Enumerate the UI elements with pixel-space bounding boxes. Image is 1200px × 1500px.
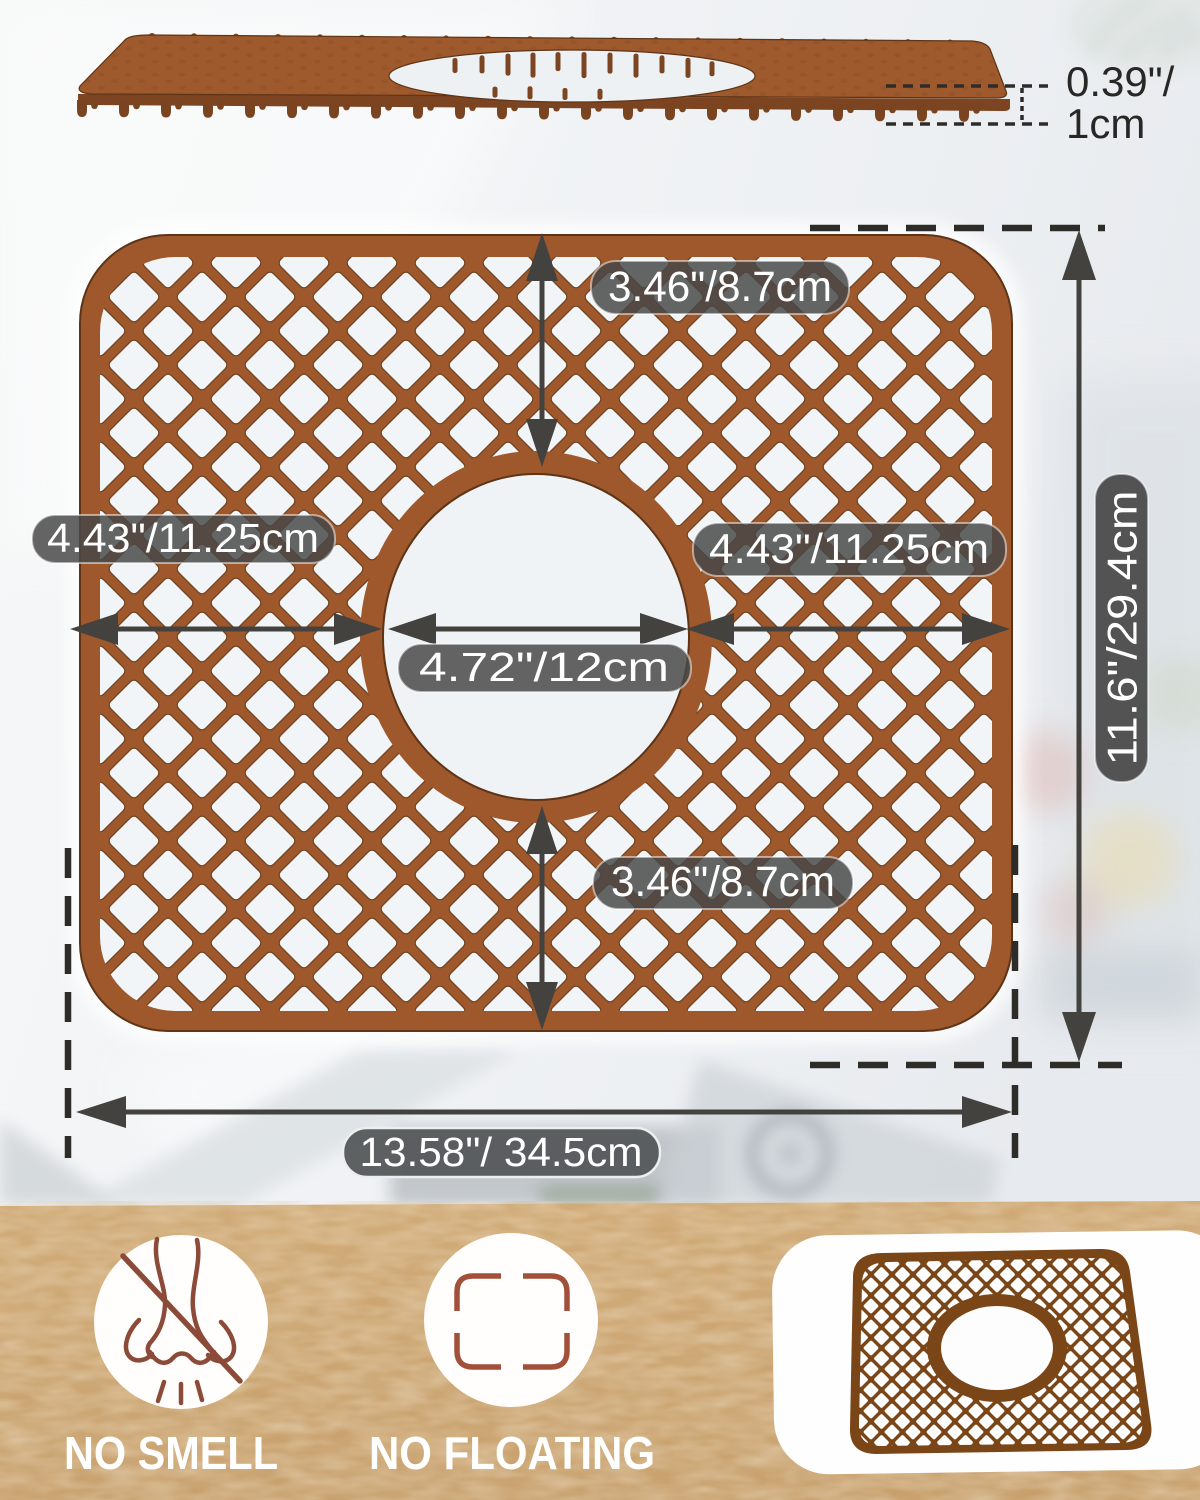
svg-text:4.72"/12cm: 4.72"/12cm	[419, 644, 669, 690]
svg-text:4.43"/11.25cm: 4.43"/11.25cm	[47, 515, 319, 561]
svg-text:13.58"/ 34.5cm: 13.58"/ 34.5cm	[360, 1129, 643, 1175]
svg-text:NO FLOATING: NO FLOATING	[369, 1427, 655, 1479]
svg-text:NO SMELL: NO SMELL	[64, 1427, 278, 1479]
svg-text:11.6"/29.4cm: 11.6"/29.4cm	[1099, 491, 1146, 766]
svg-text:3.46"/8.7cm: 3.46"/8.7cm	[611, 858, 835, 906]
svg-text:1cm: 1cm	[1066, 100, 1145, 147]
svg-text:0.39"/: 0.39"/	[1066, 58, 1175, 105]
svg-text:4.43"/11.25cm: 4.43"/11.25cm	[709, 525, 989, 572]
svg-text:3.46"/8.7cm: 3.46"/8.7cm	[608, 263, 832, 311]
